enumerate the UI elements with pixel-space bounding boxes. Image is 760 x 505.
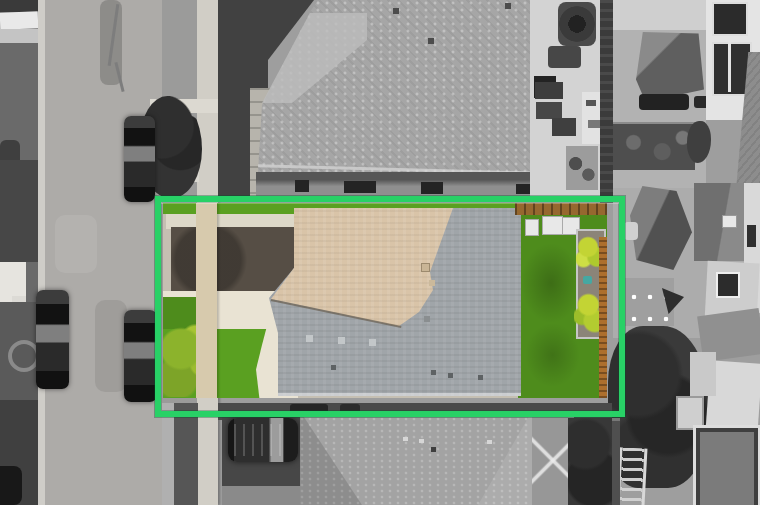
window — [516, 184, 530, 194]
far-left-roof-edge — [0, 0, 38, 12]
roof-vent — [505, 3, 511, 9]
small-hut — [676, 396, 704, 430]
property-highlight-box — [155, 196, 625, 417]
storage-shed — [690, 352, 716, 396]
aerial-property-photo — [0, 0, 760, 505]
far-left-driveway — [0, 160, 38, 262]
roof-vent — [393, 8, 399, 14]
tree-canopy — [568, 418, 612, 505]
parked-car-partial — [0, 466, 22, 505]
roof-vent — [403, 437, 408, 441]
shed-detail — [588, 120, 600, 128]
asphalt-patch — [55, 215, 97, 273]
window — [344, 181, 376, 193]
curb-line — [38, 0, 45, 505]
asphalt-patch — [95, 300, 127, 392]
roof-vent — [487, 440, 492, 444]
boulevard-shadow — [174, 403, 198, 505]
patio-chairs — [552, 118, 576, 136]
patio-sofa — [535, 82, 563, 99]
utility-trailer — [696, 428, 758, 505]
vegetable-garden — [613, 122, 695, 170]
right-house-gable-roof — [694, 183, 746, 261]
skylight — [716, 272, 740, 298]
parked-car — [124, 310, 157, 402]
chimney — [722, 215, 737, 228]
far-left-concrete — [0, 29, 38, 43]
patio-chair — [624, 222, 638, 240]
parked-suv — [228, 418, 298, 462]
hip-roof-shed — [636, 32, 704, 102]
window — [747, 225, 756, 247]
gazebo-roof-small — [566, 146, 598, 190]
far-left-walkway — [0, 11, 38, 29]
parked-vehicles — [639, 94, 689, 110]
driveway-apron — [222, 486, 306, 505]
parked-car — [124, 116, 155, 202]
window — [295, 180, 309, 192]
window — [712, 2, 748, 36]
patio-sofa — [536, 102, 562, 119]
patio-chairs — [548, 46, 581, 68]
right-neighbor-patio — [613, 0, 706, 30]
hedge-fence-line — [600, 0, 613, 203]
roof-vent — [419, 439, 424, 443]
patio-dining-set — [558, 2, 596, 46]
window — [421, 182, 443, 194]
shed-detail — [586, 100, 596, 106]
window-mullion — [728, 42, 731, 92]
backyard-tree — [687, 121, 711, 163]
roof-vent — [431, 447, 436, 452]
roof-vent — [428, 38, 434, 44]
parked-car — [36, 290, 69, 389]
ladder — [617, 447, 648, 505]
curb-below — [162, 403, 174, 505]
